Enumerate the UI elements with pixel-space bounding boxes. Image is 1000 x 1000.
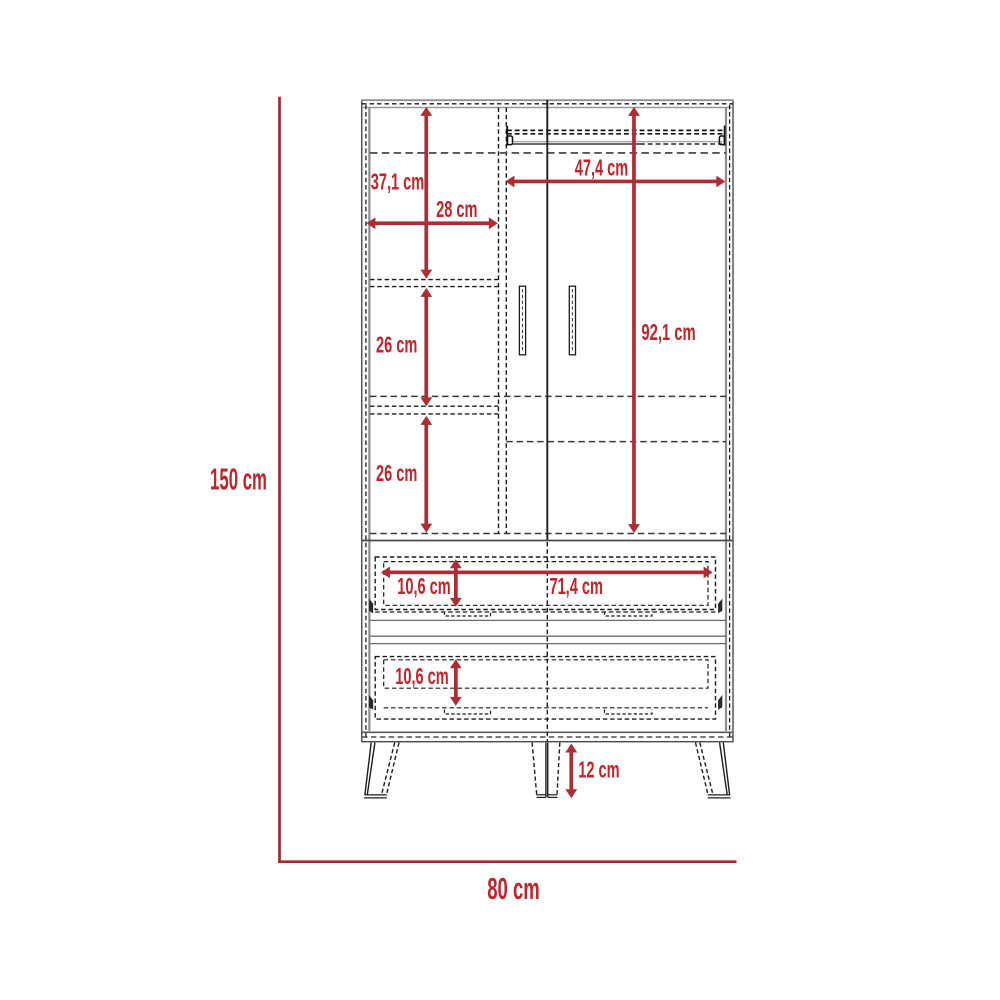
svg-text:10,6 cm: 10,6 cm <box>397 574 450 600</box>
svg-text:12 cm: 12 cm <box>578 757 619 783</box>
svg-text:80 cm: 80 cm <box>487 873 539 907</box>
svg-text:92,1 cm: 92,1 cm <box>641 320 695 346</box>
svg-text:37,1 cm: 37,1 cm <box>371 169 424 195</box>
svg-text:150 cm: 150 cm <box>210 464 267 497</box>
svg-text:28 cm: 28 cm <box>436 197 477 223</box>
svg-text:26 cm: 26 cm <box>376 332 417 358</box>
svg-text:47,4 cm: 47,4 cm <box>575 155 628 181</box>
svg-text:10,6 cm: 10,6 cm <box>395 664 448 690</box>
svg-text:71,4 cm: 71,4 cm <box>549 574 602 600</box>
svg-text:26 cm: 26 cm <box>376 460 417 486</box>
